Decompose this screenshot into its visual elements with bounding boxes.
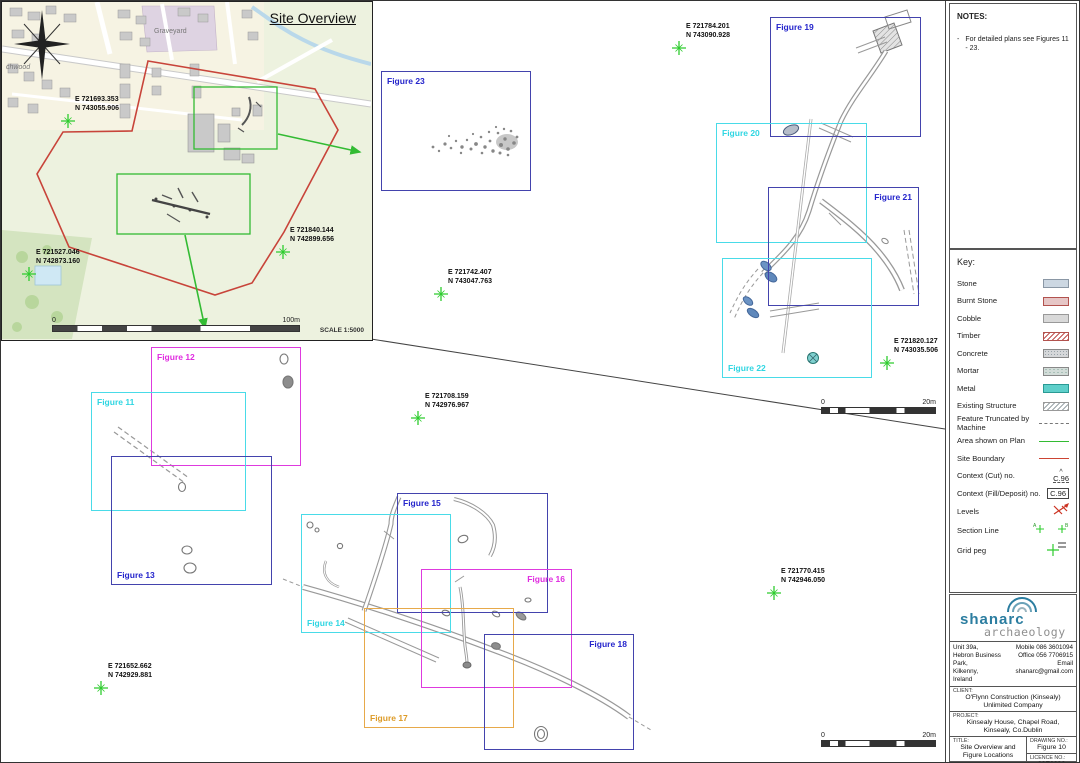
overview-scalebar-bar — [52, 325, 300, 332]
company-logo: shanarc archaeology — [950, 595, 1076, 642]
scalebar-bar — [821, 407, 936, 414]
overview-scalebar-start: 0 — [52, 317, 56, 324]
main-plan-area: Figure 23Figure 19Figure 20Figure 21Figu… — [1, 1, 946, 763]
key-item-concrete: Concrete — [957, 345, 1069, 363]
key-item-existing-structure: Existing Structure — [957, 398, 1069, 416]
plan-scalebar: 0 20m — [821, 732, 936, 747]
key-item-label: Mortar — [957, 367, 979, 376]
contact-line: Mobile 086 3601094 — [1008, 644, 1073, 652]
northing: N 742899.656 — [290, 235, 334, 244]
northing: N 743055.906 — [75, 104, 119, 113]
key-item-label: Site Boundary — [957, 455, 1005, 464]
key-item-truncated-line: Feature Truncated by Machine — [957, 415, 1069, 433]
key-item-levels: Levels — [957, 503, 1069, 522]
concrete-swatch — [1043, 349, 1069, 358]
figure-label: Figure 17 — [370, 713, 408, 723]
map-label-chwood: chwood — [6, 64, 30, 71]
easting: E 721784.201 — [686, 22, 730, 31]
note-item: - For detailed plans see Figures 11 - 23… — [957, 35, 1069, 53]
contact-line: Office 056 7706915 — [1008, 652, 1073, 660]
figure-box-figure-18: Figure 18 — [484, 634, 634, 750]
key-item-label: Area shown on Plan — [957, 437, 1025, 446]
key-item-cobble: Cobble — [957, 310, 1069, 328]
timber-swatch — [1043, 332, 1069, 341]
northing: N 742929.881 — [108, 671, 152, 680]
levels-icon — [1051, 503, 1069, 522]
site-overview-map: Site Overview Graveyard chwood 0 100m SC… — [1, 1, 373, 341]
note-text: For detailed plans see Figures 11 - 23. — [965, 35, 1069, 53]
grid-peg-coordinates: E 721742.407 N 743047.763 — [448, 268, 492, 286]
grid-peg-coordinates: E 721652.662 N 742929.881 — [108, 662, 152, 680]
contact-line: Email shanarc@gmail.com — [1008, 660, 1073, 676]
company-address: Unit 39a, Hebron Business Park, Kilkenny… — [953, 644, 1008, 684]
title-block: shanarc archaeology Unit 39a, Hebron Bus… — [949, 594, 1077, 762]
northing: N 742976.967 — [425, 401, 469, 410]
grid-peg-coordinates: E 721693.353 N 743055.906 — [75, 95, 119, 113]
figure-label: Figure 20 — [722, 128, 760, 138]
key-item-label: Feature Truncated by Machine — [957, 415, 1039, 432]
easting: E 721840.144 — [290, 226, 334, 235]
title-grid: TITLE: Site Overview and Figure Location… — [950, 737, 1076, 763]
overview-scale-text: SCALE 1:5000 — [320, 327, 364, 334]
key-item-label: Cobble — [957, 315, 981, 324]
overview-scalebar-end: 100m — [282, 317, 300, 324]
svg-text:A: A — [1033, 523, 1037, 529]
svg-text:B: B — [1065, 523, 1069, 529]
drawing-sheet: Figure 23Figure 19Figure 20Figure 21Figu… — [0, 0, 1080, 763]
drawing-no-value: Figure 10 — [1030, 744, 1073, 752]
grid-peg-coordinates: E 721784.201 N 743090.928 — [686, 22, 730, 40]
grid-peg-coordinates: E 721820.127 N 743035.506 — [894, 337, 938, 355]
key-item-label: Section Line — [957, 527, 999, 536]
key-item-context-fill: Context (Fill/Deposit) no.C.96 — [957, 485, 1069, 503]
stone-swatch — [1043, 279, 1069, 288]
figure-label: Figure 14 — [307, 618, 345, 628]
key-item-mortar: Mortar — [957, 363, 1069, 381]
scalebar-start: 0 — [821, 732, 825, 739]
key-item-red-line: Site Boundary — [957, 450, 1069, 468]
key-item-section-line: Section Line A B — [957, 522, 1069, 541]
title-cell: TITLE: Site Overview and Figure Location… — [950, 737, 1026, 763]
address-line: Kilkenny, — [953, 668, 1008, 676]
address-line: Ireland — [953, 676, 1008, 684]
northing: N 743047.763 — [448, 277, 492, 286]
metal-swatch — [1043, 384, 1069, 393]
key-list: StoneBurnt StoneCobbleTimberConcreteMort… — [957, 275, 1069, 562]
key-item-label: Levels — [957, 508, 979, 517]
grid-peg-coordinates: E 721840.144 N 742899.656 — [290, 226, 334, 244]
notes-heading: NOTES: — [957, 12, 1069, 21]
scalebar-start: 0 — [821, 399, 825, 406]
context-fill-symbol: C.96 — [1047, 488, 1069, 499]
key-item-green-line: Area shown on Plan — [957, 433, 1069, 451]
logo-arches-icon — [1002, 596, 1046, 612]
key-item-label: Context (Cut) no. — [957, 472, 1015, 481]
northing: N 743090.928 — [686, 31, 730, 40]
key-item-timber: Timber — [957, 328, 1069, 346]
figure-label: Figure 12 — [157, 352, 195, 362]
client-value: O'Flynn Construction (Kinsealy) Unlimite… — [953, 694, 1073, 710]
overview-map-art — [2, 2, 371, 339]
red-line-swatch — [1039, 458, 1069, 459]
project-value: Kinsealy House, Chapel Road, Kinsealy, C… — [953, 719, 1073, 735]
key-item-label: Context (Fill/Deposit) no. — [957, 490, 1041, 499]
easting: E 721527.046 — [36, 248, 80, 257]
northing: N 743035.506 — [894, 346, 938, 355]
cobble-swatch — [1043, 314, 1069, 323]
easting: E 721820.127 — [894, 337, 938, 346]
key-item-label: Grid peg — [957, 547, 986, 556]
northing: N 742873.160 — [36, 257, 80, 266]
easting: E 721742.407 — [448, 268, 492, 277]
figure-box-figure-19: Figure 19 — [770, 17, 921, 137]
existing-structure-swatch — [1043, 402, 1069, 411]
client-row: CLIENT: O'Flynn Construction (Kinsealy) … — [950, 687, 1076, 712]
figure-label: Figure 22 — [728, 363, 766, 373]
section-line-icon: A B — [1033, 522, 1069, 541]
figure-label: Figure 16 — [527, 574, 565, 584]
figure-box-figure-13: Figure 13 — [111, 456, 272, 585]
figure-label: Figure 11 — [97, 397, 134, 407]
key-item-label: Timber — [957, 332, 980, 341]
key-item-metal: Metal — [957, 380, 1069, 398]
map-label-graveyard: Graveyard — [154, 28, 187, 35]
figure-label: Figure 23 — [387, 76, 425, 86]
key-item-label: Burnt Stone — [957, 297, 997, 306]
grid-peg-coordinates: E 721770.415 N 742946.050 — [781, 567, 825, 585]
scalebar-end: 20m — [922, 732, 936, 739]
overview-title: Site Overview — [270, 10, 356, 26]
scalebar-bar — [821, 740, 936, 747]
key-item-label: Concrete — [957, 350, 988, 359]
mortar-swatch — [1043, 367, 1069, 376]
key-box: Key: StoneBurnt StoneCobbleTimberConcret… — [949, 249, 1077, 593]
drawing-no-cell: DRAWING NO.: Figure 10 — [1027, 737, 1076, 754]
truncated-line-swatch — [1039, 423, 1069, 424]
easting: E 721708.159 — [425, 392, 469, 401]
plan-scalebar: 0 20m — [821, 399, 936, 414]
key-item-context-cut: Context (Cut) no. ^ C.96 — [957, 468, 1069, 486]
figure-label: Figure 19 — [776, 22, 814, 32]
note-bullet: - — [957, 35, 959, 53]
licence-no-cell: LICENCE NO.: 20E0236 — [1027, 754, 1076, 763]
figure-label: Figure 18 — [589, 639, 627, 649]
green-line-swatch — [1039, 441, 1069, 442]
address-line: Unit 39a, — [953, 644, 1008, 652]
key-item-burnt-stone: Burnt Stone — [957, 293, 1069, 311]
key-item-label: Existing Structure — [957, 402, 1017, 411]
logo-text-archaeology: archaeology — [984, 625, 1066, 639]
overview-scalebar: 0 100m — [52, 317, 300, 332]
easting: E 721770.415 — [781, 567, 825, 576]
key-item-grid-peg: Grid peg — [957, 541, 1069, 562]
figure-label: Figure 13 — [117, 570, 155, 580]
burnt-stone-swatch — [1043, 297, 1069, 306]
northing: N 742946.050 — [781, 576, 825, 585]
notes-box: NOTES: - For detailed plans see Figures … — [949, 3, 1077, 249]
figure-box-figure-22: Figure 22 — [722, 258, 872, 378]
right-panel: NOTES: - For detailed plans see Figures … — [947, 1, 1080, 763]
address-line: Hebron Business Park, — [953, 652, 1008, 668]
grid-peg-coordinates: E 721708.159 N 742976.967 — [425, 392, 469, 410]
key-item-label: Metal — [957, 385, 976, 394]
contact-row: Unit 39a, Hebron Business Park, Kilkenny… — [950, 642, 1076, 687]
project-row: PROJECT: Kinsealy House, Chapel Road, Ki… — [950, 712, 1076, 737]
grid-peg-coordinates: E 721527.046 N 742873.160 — [36, 248, 80, 266]
figure-label: Figure 15 — [403, 498, 441, 508]
grid-peg-icon — [1045, 541, 1069, 562]
easting: E 721693.353 — [75, 95, 119, 104]
key-item-stone: Stone — [957, 275, 1069, 293]
scalebar-end: 20m — [922, 399, 936, 406]
context-cut-symbol: ^ C.96 — [1053, 470, 1069, 483]
key-heading: Key: — [957, 257, 1069, 267]
easting: E 721652.662 — [108, 662, 152, 671]
figure-box-figure-23: Figure 23 — [381, 71, 531, 191]
key-item-label: Stone — [957, 280, 977, 289]
title-value: Site Overview and Figure Locations — [953, 744, 1023, 760]
figure-label: Figure 21 — [874, 192, 912, 202]
company-contact: Mobile 086 3601094 Office 056 7706915 Em… — [1008, 644, 1073, 684]
